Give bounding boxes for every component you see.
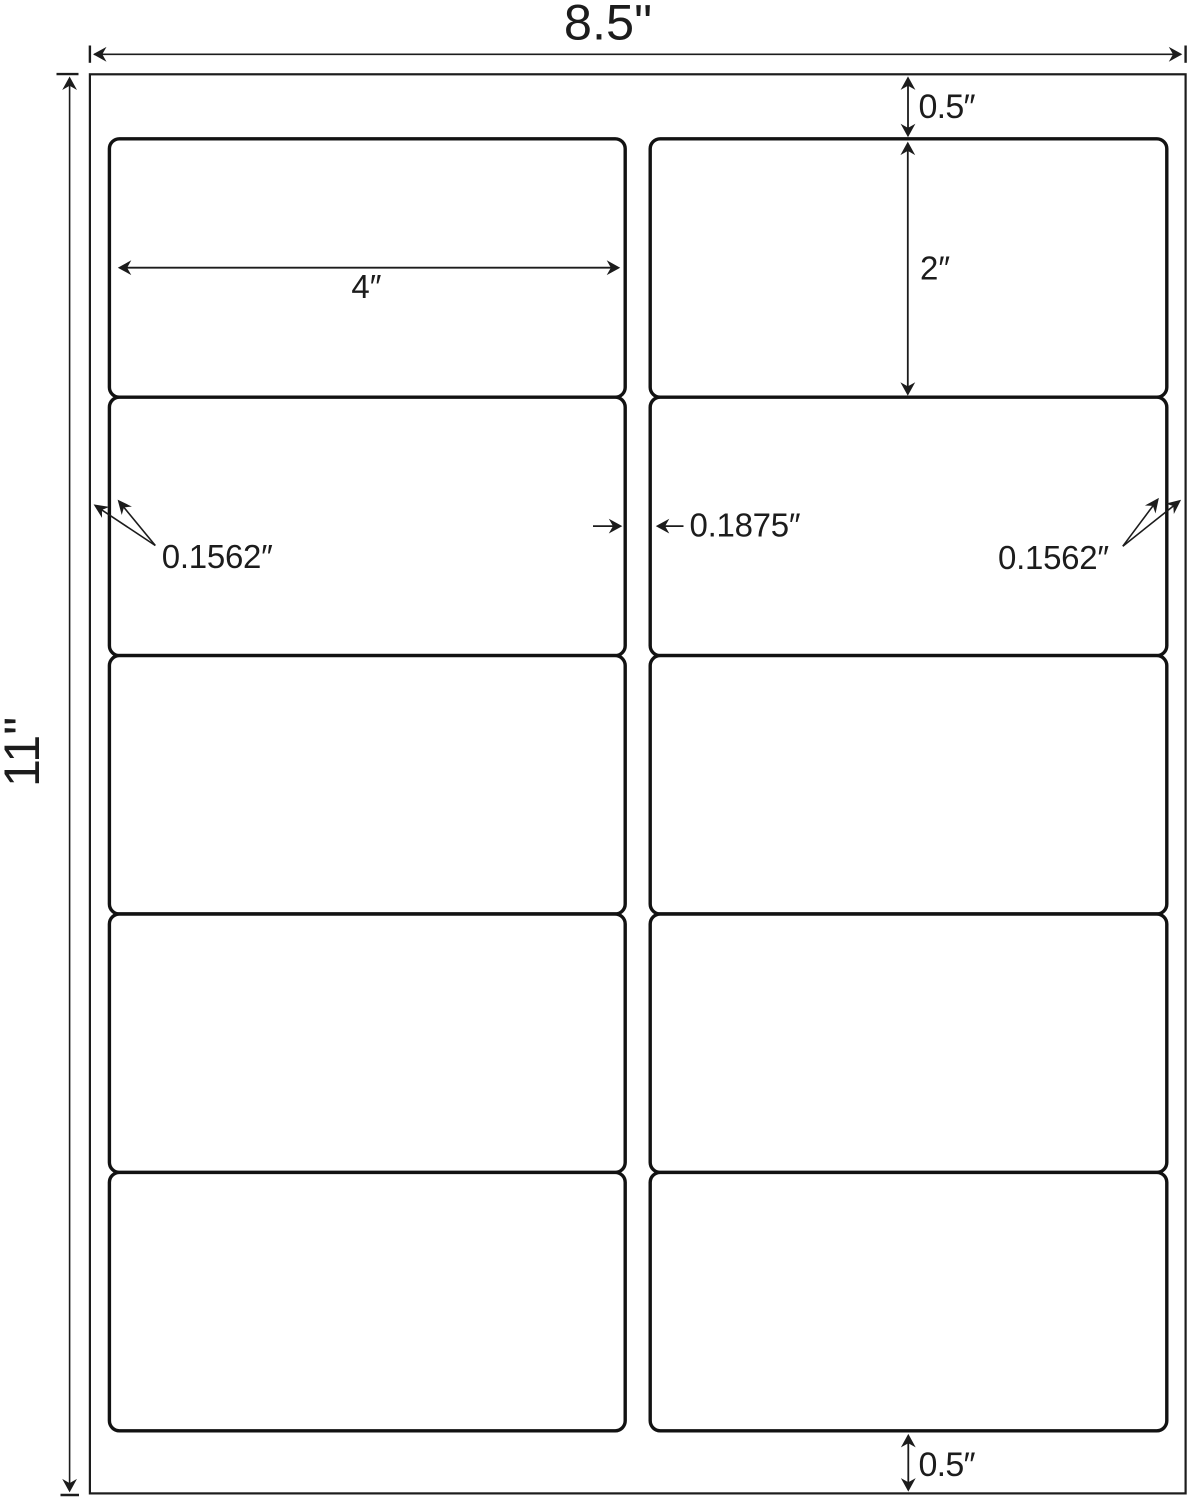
svg-text:0.1562″: 0.1562″	[162, 538, 273, 575]
svg-text:0.1562″: 0.1562″	[998, 539, 1109, 576]
svg-text:2″: 2″	[920, 249, 950, 286]
svg-text:8.5": 8.5"	[564, 0, 652, 51]
svg-text:0.5″: 0.5″	[919, 88, 976, 126]
svg-text:0.1875″: 0.1875″	[690, 507, 801, 544]
svg-text:4″: 4″	[351, 268, 381, 305]
svg-text:0.5″: 0.5″	[919, 1446, 976, 1484]
svg-text:11": 11"	[0, 717, 50, 787]
